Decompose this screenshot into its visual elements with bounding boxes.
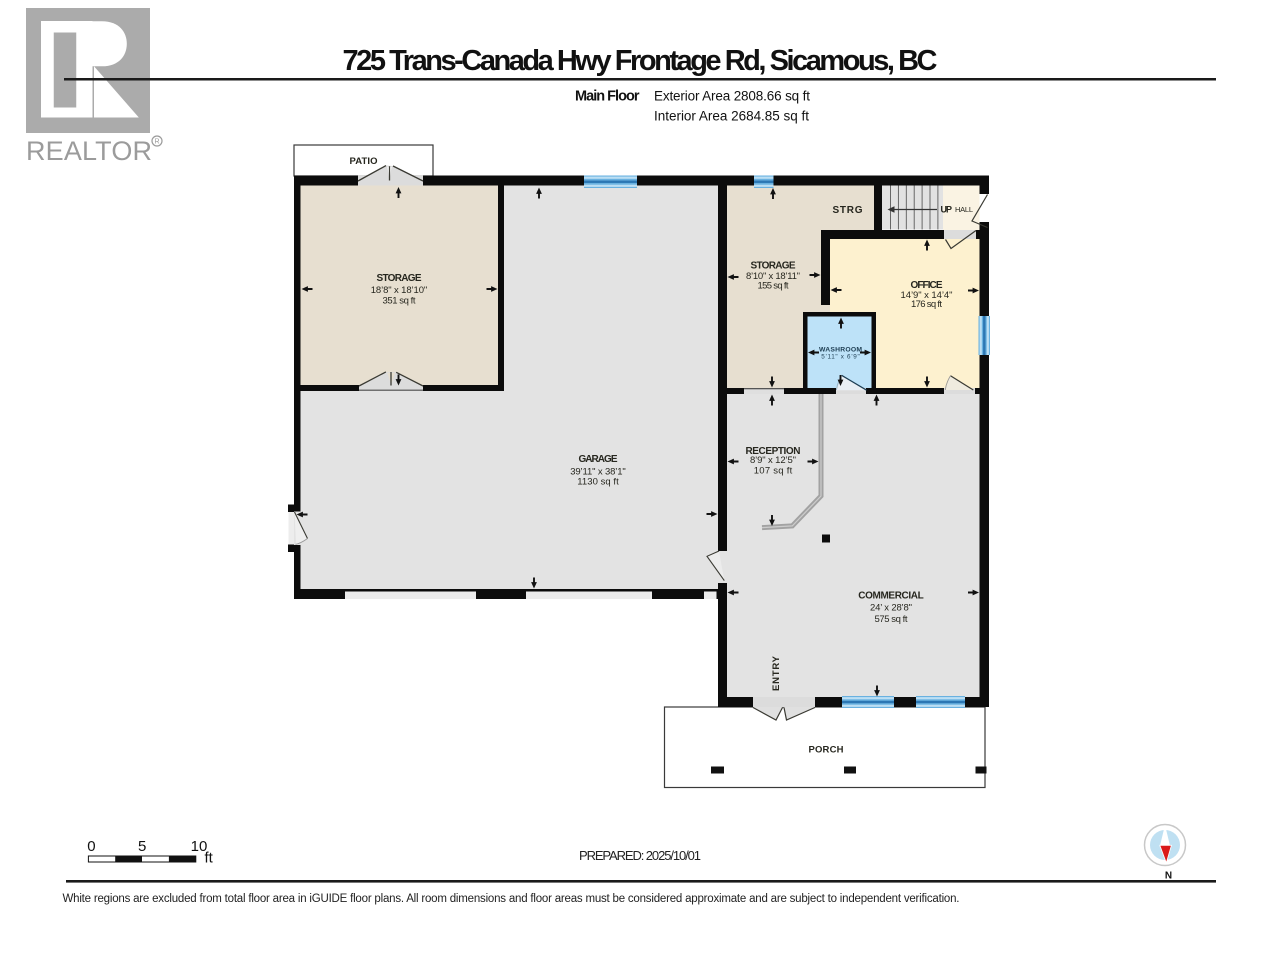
svg-text:Interior Area 2684.85 sq ft: Interior Area 2684.85 sq ft	[654, 109, 809, 124]
svg-text:White regions are excluded fro: White regions are excluded from total fl…	[63, 893, 960, 905]
svg-text:STRG: STRG	[833, 205, 863, 216]
svg-text:155 sq ft: 155 sq ft	[758, 280, 789, 291]
svg-text:18’8" x 18’10": 18’8" x 18’10"	[371, 285, 428, 296]
svg-text:Main Floor: Main Floor	[575, 89, 640, 105]
svg-text:GARAGE: GARAGE	[579, 454, 618, 465]
svg-text:575 sq ft: 575 sq ft	[875, 614, 908, 625]
svg-text:ft: ft	[205, 850, 214, 867]
svg-text:STORAGE: STORAGE	[377, 273, 422, 284]
svg-text:24’ x 28’8": 24’ x 28’8"	[870, 603, 912, 614]
svg-text:PATIO: PATIO	[350, 156, 378, 167]
svg-text:COMMERCIAL: COMMERCIAL	[858, 591, 924, 602]
svg-text:UP: UP	[941, 205, 953, 215]
svg-text:725 Trans-Canada Hwy Frontage: 725 Trans-Canada Hwy Frontage Rd, Sicamo…	[343, 45, 938, 77]
svg-text:5’11" x 6’9": 5’11" x 6’9"	[821, 353, 860, 360]
svg-text:PORCH: PORCH	[809, 745, 844, 756]
svg-text:PREPARED: 2025/10/01: PREPARED: 2025/10/01	[579, 848, 701, 863]
svg-text:5: 5	[138, 838, 146, 855]
svg-text:351 sq ft: 351 sq ft	[383, 296, 416, 307]
svg-text:1130 sq ft: 1130 sq ft	[577, 477, 619, 488]
svg-text:107 sq ft: 107 sq ft	[754, 466, 793, 477]
svg-text:REALTOR: REALTOR	[26, 136, 152, 166]
svg-text:8’9" x 12’5": 8’9" x 12’5"	[750, 455, 796, 466]
svg-text:HALL: HALL	[955, 205, 973, 214]
svg-text:R: R	[154, 139, 159, 146]
svg-text:STORAGE: STORAGE	[751, 261, 796, 272]
svg-text:N: N	[1165, 871, 1172, 882]
svg-text:ENTRY: ENTRY	[771, 655, 782, 691]
svg-text:Exterior Area 2808.66 sq ft: Exterior Area 2808.66 sq ft	[654, 89, 810, 104]
svg-text:0: 0	[87, 838, 95, 855]
svg-text:176 sq ft: 176 sq ft	[911, 299, 942, 310]
svg-text:WASHROOM: WASHROOM	[819, 346, 862, 353]
